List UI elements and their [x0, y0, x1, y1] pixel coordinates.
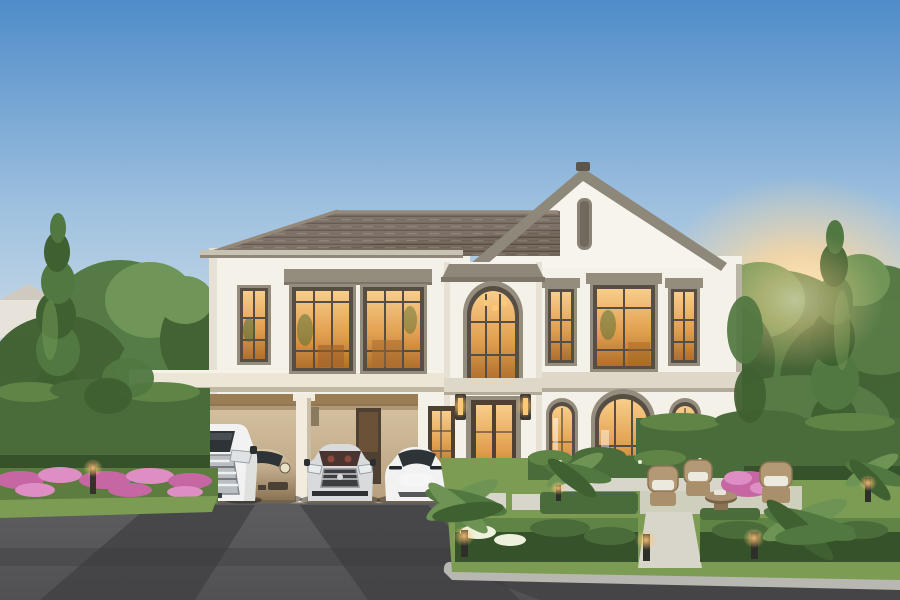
- sedan-headlight: [358, 464, 372, 474]
- mpv-mirror: [250, 446, 257, 454]
- patio-chair-2: [684, 460, 712, 496]
- arched-tower-window: [463, 281, 523, 382]
- floor-band: [129, 370, 742, 393]
- upper-window-right-narrow-1: [542, 278, 580, 366]
- pendant-light: [501, 300, 507, 306]
- sedan-headlight: [308, 464, 322, 474]
- sedan-grille: [321, 469, 359, 487]
- sedan-windshield: [319, 451, 361, 466]
- patio-chair-1: [648, 466, 678, 506]
- scene-canvas: [0, 0, 900, 600]
- upper-window-right-wide: [586, 273, 662, 372]
- mpv-headlight: [230, 450, 252, 463]
- ev-headlight: [389, 466, 402, 470]
- pendant-light: [492, 305, 498, 311]
- upper-window-left-narrow: [237, 285, 271, 365]
- gable-vent: [577, 198, 592, 250]
- patio-chair-3: [760, 462, 792, 503]
- upper-window-right-narrow-2: [665, 278, 703, 366]
- sports-headlight: [280, 463, 290, 473]
- pendant-light: [483, 300, 489, 306]
- ev-headlight: [430, 466, 443, 470]
- architectural-render-image: [0, 0, 900, 600]
- gable-finial: [576, 162, 590, 171]
- hedge-block-mid-2: [700, 508, 760, 520]
- tower-band: [444, 378, 542, 394]
